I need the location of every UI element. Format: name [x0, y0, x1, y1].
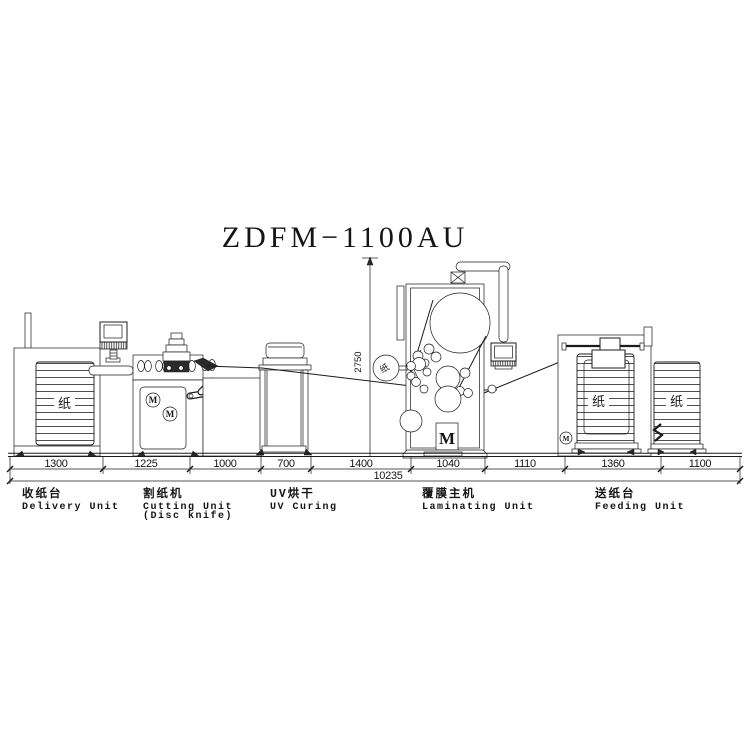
- film-roll: [430, 293, 490, 353]
- delivery-label-en: Delivery Unit: [22, 501, 120, 513]
- feeding-label-cn: 送纸台: [594, 486, 636, 501]
- guide-roller: [400, 410, 422, 432]
- diagram-canvas: ZDFM−1100AU 纸: [0, 0, 750, 750]
- unit-labels: 收纸台 Delivery Unit 割纸机 Cutting Unit (Disc…: [22, 486, 685, 522]
- model-title: ZDFM−1100AU: [222, 221, 469, 254]
- paper-stack-label: 纸: [592, 394, 605, 409]
- control-monitor-laminating: [491, 343, 516, 369]
- transfer-table: [203, 378, 262, 456]
- motor-label: M: [149, 395, 158, 405]
- height-dimension: 2750: [353, 257, 378, 456]
- dim-value: 1360: [601, 458, 624, 470]
- uv-curing-unit: [256, 343, 312, 455]
- laminating-label-en: Laminating Unit: [422, 501, 535, 513]
- press-roller: [435, 386, 461, 412]
- height-dimension-value: 2750: [353, 351, 364, 372]
- dim-value: 1000: [213, 458, 236, 470]
- dimension-chain: 1300 1225 1000 700 1400 1040 1110 1360 1…: [7, 457, 743, 484]
- dim-value: 1100: [689, 458, 712, 470]
- paper-roll-symbol: 纸: [373, 355, 408, 381]
- dim-value: 700: [277, 458, 295, 470]
- machine-layout-drawing: ZDFM−1100AU 纸: [0, 0, 750, 750]
- motor-label: M: [563, 435, 570, 443]
- cutting-label-en2: (Disc knife): [143, 510, 233, 522]
- motor-label: M: [166, 409, 175, 419]
- feeding-unit: 纸 M: [558, 327, 652, 456]
- dim-value: 1110: [514, 458, 536, 470]
- dim-value: 1225: [134, 458, 157, 470]
- dim-value: 1040: [436, 458, 459, 470]
- paper-stack-label: 纸: [58, 396, 71, 411]
- dim-value: 1300: [44, 458, 67, 470]
- main-motor-label: M: [439, 429, 455, 448]
- dim-value: 1400: [349, 458, 372, 470]
- paper-stack-label: 纸: [670, 394, 683, 409]
- uv-label-en: UV Curing: [270, 501, 338, 513]
- disc-knife-assembly: [163, 333, 190, 372]
- feeding-label-en: Feeding Unit: [595, 501, 685, 513]
- uv-label-cn: UV烘干: [270, 486, 315, 501]
- delivery-label-cn: 收纸台: [22, 486, 63, 501]
- cutting-label-cn: 割纸机: [143, 486, 184, 501]
- dim-total: 10235: [373, 470, 402, 482]
- control-monitor-cutting: [100, 322, 127, 362]
- paper-pile: 纸: [648, 362, 706, 455]
- delivery-conveyor: [89, 366, 133, 375]
- laminating-unit: 2750: [353, 257, 516, 458]
- delivery-unit: 纸: [14, 313, 100, 456]
- laminating-label-cn: 覆膜主机: [422, 486, 476, 501]
